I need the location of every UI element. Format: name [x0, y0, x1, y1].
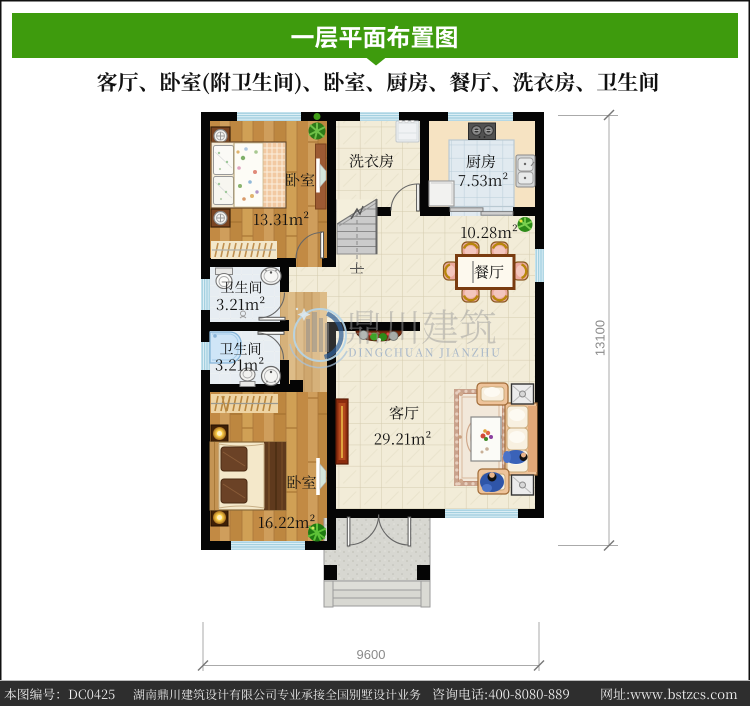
- svg-text:13100: 13100: [593, 320, 608, 356]
- svg-text:9600: 9600: [357, 647, 386, 662]
